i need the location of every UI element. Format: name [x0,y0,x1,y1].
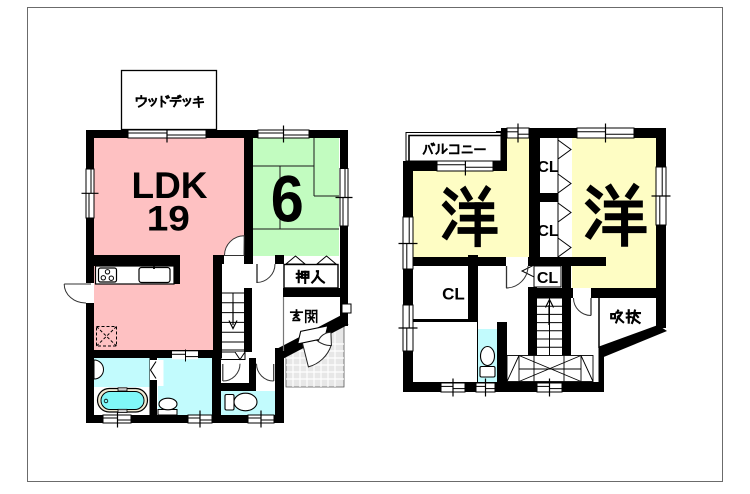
svg-text:CL: CL [442,285,465,304]
svg-text:19: 19 [147,199,190,238]
svg-text:CL: CL [537,270,559,287]
svg-text:CL: CL [537,223,559,240]
svg-text:6: 6 [271,163,304,237]
svg-text:CL: CL [537,159,559,176]
